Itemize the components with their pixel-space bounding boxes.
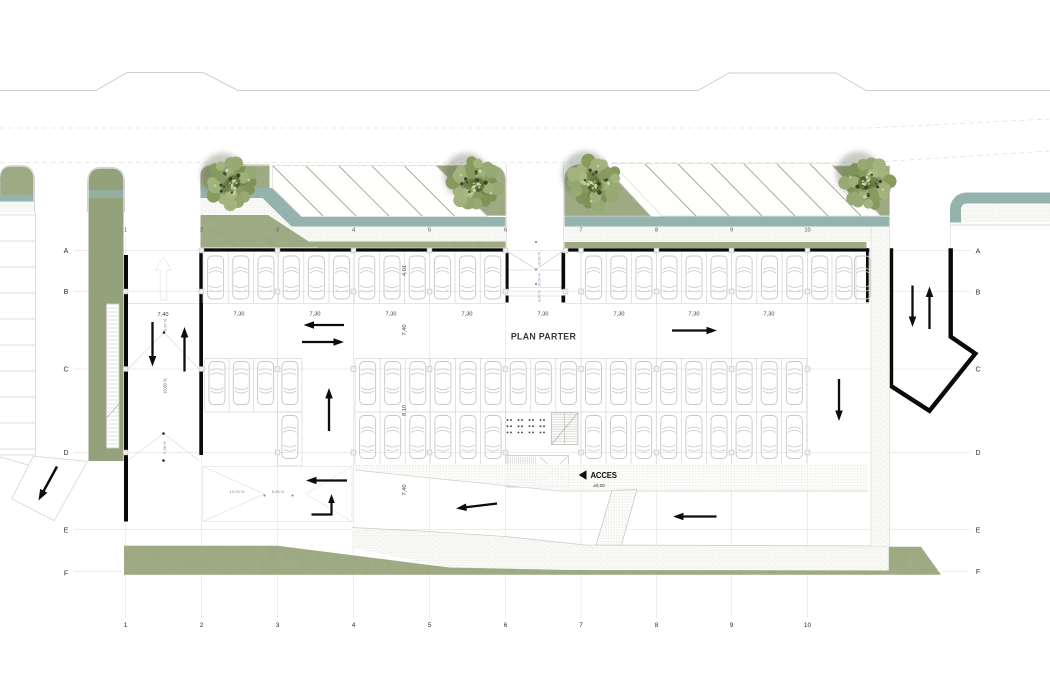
svg-text:7,40: 7,40 [158, 312, 169, 318]
svg-text:7,30: 7,30 [614, 312, 625, 318]
svg-text:±0,00: ±0,00 [593, 483, 605, 489]
svg-text:5,98 %: 5,98 % [162, 441, 167, 454]
svg-text:D: D [63, 450, 68, 457]
svg-text:6: 6 [504, 228, 507, 234]
svg-text:7: 7 [579, 228, 582, 234]
svg-text:D: D [975, 450, 980, 457]
svg-text:8,00 %: 8,00 % [538, 289, 542, 301]
svg-text:7,30: 7,30 [538, 312, 549, 318]
svg-text:8: 8 [655, 228, 658, 234]
svg-text:16,00 %: 16,00 % [538, 272, 542, 287]
svg-text:7: 7 [579, 622, 583, 629]
svg-text:10: 10 [804, 228, 810, 234]
svg-text:4: 4 [352, 228, 355, 234]
svg-text:7,40: 7,40 [402, 485, 408, 496]
svg-text:7,30: 7,30 [234, 312, 245, 318]
svg-text:5: 5 [428, 622, 432, 629]
svg-text:10: 10 [804, 622, 812, 629]
svg-text:7,30: 7,30 [310, 312, 321, 318]
svg-text:9: 9 [730, 622, 734, 629]
svg-text:5: 5 [428, 228, 431, 234]
svg-text:A: A [64, 248, 69, 255]
svg-text:1: 1 [124, 622, 128, 629]
svg-text:C: C [975, 367, 980, 374]
svg-text:F: F [976, 569, 980, 576]
svg-text:PLAN PARTER: PLAN PARTER [511, 331, 577, 341]
svg-text:ACCES: ACCES [591, 471, 617, 480]
svg-text:7,30: 7,30 [386, 312, 397, 318]
svg-text:E: E [64, 528, 69, 535]
svg-text:7,30: 7,30 [462, 312, 473, 318]
svg-text:8: 8 [655, 622, 659, 629]
svg-text:3: 3 [276, 622, 280, 629]
svg-text:F: F [64, 571, 68, 578]
svg-text:8,98 %: 8,98 % [272, 489, 285, 494]
svg-text:7,30: 7,30 [689, 312, 700, 318]
svg-text:10,00 %: 10,00 % [230, 489, 245, 494]
svg-text:4,01: 4,01 [402, 265, 408, 276]
svg-text:5,35 %: 5,35 % [163, 318, 168, 331]
svg-text:16,00 %: 16,00 % [163, 378, 168, 394]
svg-text:7,30: 7,30 [764, 312, 775, 318]
svg-text:A: A [976, 249, 981, 256]
svg-text:7,40: 7,40 [402, 325, 408, 336]
svg-text:16,00 %: 16,00 % [538, 251, 542, 266]
svg-text:C: C [63, 367, 68, 374]
svg-text:4: 4 [352, 622, 356, 629]
svg-text:6: 6 [504, 622, 508, 629]
svg-text:1: 1 [124, 228, 127, 234]
svg-text:E: E [976, 528, 981, 535]
svg-text:B: B [64, 289, 69, 296]
svg-text:9: 9 [730, 228, 733, 234]
svg-text:2: 2 [200, 622, 204, 629]
svg-text:B: B [976, 290, 981, 297]
